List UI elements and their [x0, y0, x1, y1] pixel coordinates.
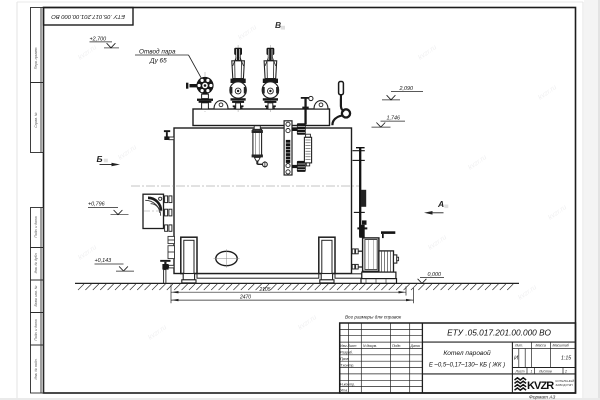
svg-text:Котел паровой: Котел паровой	[443, 349, 491, 357]
svg-text:1,746: 1,746	[387, 115, 401, 121]
svg-text:Н.контр.: Н.контр.	[340, 382, 355, 386]
svg-text:Пров.: Пров.	[340, 357, 349, 361]
svg-text:ЕТУ .05.017.201.00.000 ВО: ЕТУ .05.017.201.00.000 ВО	[447, 328, 551, 338]
svg-text:Ду 65: Ду 65	[149, 58, 167, 65]
svg-text:2: 2	[564, 370, 567, 374]
svg-text:Масса: Масса	[536, 344, 546, 348]
svg-text:Инв. № дубл.: Инв. № дубл.	[34, 253, 38, 274]
svg-text:Лит.: Лит.	[514, 344, 523, 348]
svg-text:Подп. и дата: Подп. и дата	[34, 216, 38, 237]
svg-text:Подп. и дата: Подп. и дата	[34, 319, 38, 340]
svg-text:+0,796: +0,796	[88, 202, 105, 208]
svg-text:В: В	[275, 20, 281, 30]
svg-text:2,090: 2,090	[399, 86, 414, 92]
svg-text:2105: 2105	[258, 287, 270, 293]
svg-text:Перв. примен.: Перв. примен.	[34, 47, 38, 70]
svg-text:Т.контр.: Т.контр.	[340, 363, 354, 367]
svg-text:2470: 2470	[239, 295, 251, 301]
svg-text:Все размеры для справок: Все размеры для справок	[345, 315, 402, 320]
svg-text:1: 1	[531, 370, 533, 374]
svg-text:+0,143: +0,143	[95, 258, 112, 264]
svg-text:Отвод пара: Отвод пара	[139, 47, 176, 55]
svg-text:Утв.: Утв.	[340, 389, 348, 393]
svg-text:Масштаб: Масштаб	[553, 344, 570, 348]
svg-text:ЗАВОД РЭП: ЗАВОД РЭП	[556, 383, 573, 387]
svg-text:Листов: Листов	[538, 370, 552, 374]
svg-text:N докум.: N докум.	[363, 344, 377, 348]
svg-text:Е –0,5–0,17–130– КБ ( ЖК ): Е –0,5–0,17–130– КБ ( ЖК )	[429, 363, 505, 369]
svg-text:Подп.: Подп.	[392, 344, 401, 348]
svg-text:А: А	[437, 199, 444, 209]
svg-text:ЕТУ .05.017.201.00.000 ВО: ЕТУ .05.017.201.00.000 ВО	[51, 13, 125, 19]
svg-text:Инв. № подл.: Инв. № подл.	[34, 358, 38, 379]
svg-text:Взам. инв. №: Взам. инв. №	[34, 285, 38, 306]
svg-text:Лист: Лист	[515, 370, 525, 374]
svg-text:Справ. №: Справ. №	[34, 112, 38, 128]
svg-text:Изм Лист: Изм Лист	[340, 344, 357, 348]
svg-text:1:15: 1:15	[561, 356, 571, 362]
svg-text:Дата: Дата	[410, 344, 420, 348]
svg-text:КОТЕЛЬНЫЙ: КОТЕЛЬНЫЙ	[556, 379, 575, 383]
svg-text:Разраб.: Разраб.	[340, 351, 353, 355]
svg-text:Формат А3: Формат А3	[529, 395, 556, 400]
svg-text:Б: Б	[97, 154, 103, 164]
svg-text:KVZR: KVZR	[527, 380, 554, 392]
